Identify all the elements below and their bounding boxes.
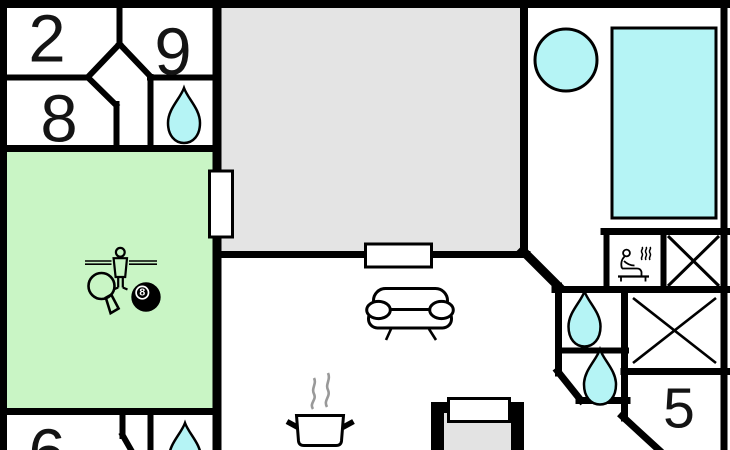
- crossed-box-icon: [668, 236, 719, 286]
- floor-plan-drawing: [0, 0, 730, 450]
- room-5-label: 5: [663, 381, 695, 438]
- crossed-room-icon: [633, 298, 716, 363]
- door-icon: [210, 171, 233, 237]
- eight-ball-icon: [131, 282, 160, 311]
- cooking-pot-icon: [287, 373, 354, 446]
- swimming-pool-icon: [612, 28, 716, 218]
- room-9-label: 9: [154, 19, 191, 86]
- water-drop-icon: [584, 350, 616, 405]
- hall-room-floor: [215, 4, 527, 255]
- room-2-label: 2: [28, 6, 65, 73]
- game-room-floor: [3, 148, 218, 414]
- room-8-label: 8: [40, 86, 77, 153]
- entrance-steps-icon: [431, 399, 524, 450]
- floor-plan: 2 9 8 6 5 8: [0, 0, 730, 450]
- sauna-icon: [618, 247, 651, 282]
- door-icon: [366, 244, 432, 267]
- water-drop-icon: [168, 88, 200, 143]
- room-6-label: 6: [28, 420, 65, 450]
- water-drop-icon: [169, 423, 201, 450]
- hot-tub-icon: [535, 29, 597, 91]
- steam-icon: [312, 378, 315, 409]
- eight-ball-number: 8: [139, 287, 145, 298]
- water-drop-icon: [569, 292, 601, 347]
- sofa-icon: [367, 289, 454, 341]
- steam-icon: [326, 373, 329, 407]
